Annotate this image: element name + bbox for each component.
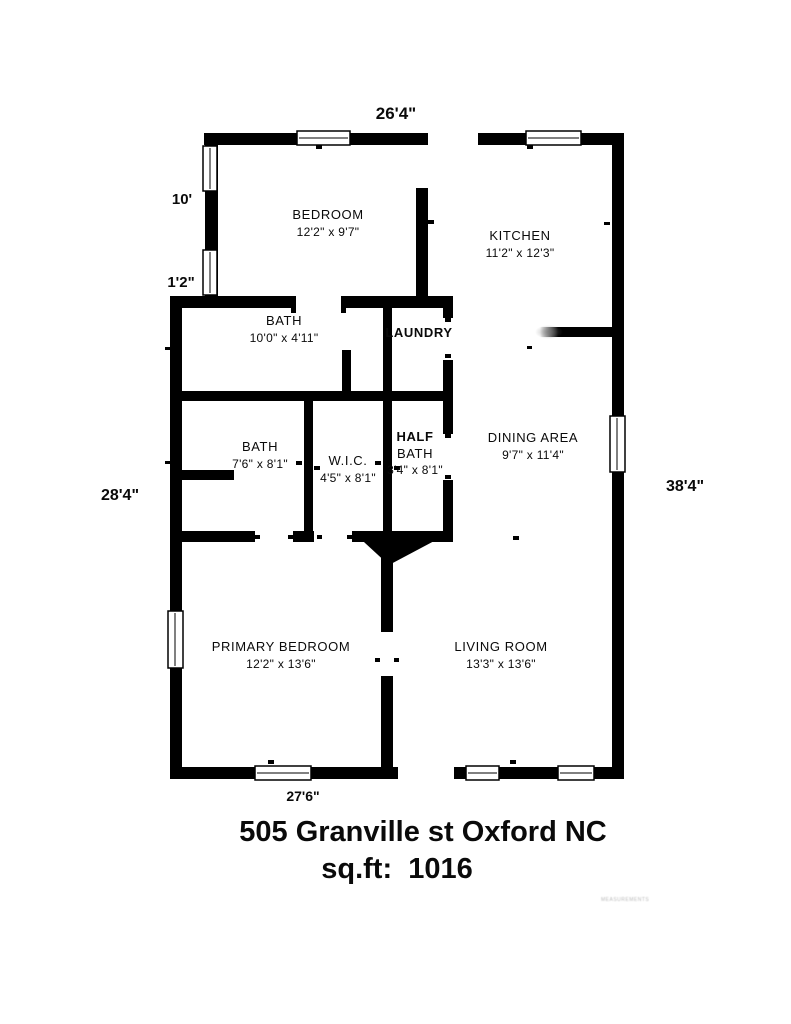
tick-mark	[317, 535, 322, 539]
room-dims: 11'2" x 12'3"	[486, 247, 555, 259]
tick-mark	[314, 466, 320, 470]
tick-mark	[347, 535, 352, 539]
tick-mark	[268, 760, 274, 764]
tick-mark	[445, 434, 451, 438]
wall-segment	[342, 350, 351, 395]
tick-mark	[510, 760, 516, 764]
room-name: LIVING ROOM	[454, 640, 547, 653]
wall-segment	[558, 327, 614, 337]
room-dims: 7'6" x 8'1"	[232, 458, 288, 470]
tick-mark	[316, 145, 322, 149]
window	[466, 766, 499, 780]
room-name: KITCHEN	[486, 229, 555, 242]
room-label-bath-main: BATH 10'0" x 4'11"	[250, 314, 319, 344]
smudge-mark	[535, 325, 563, 339]
tick-mark	[375, 461, 381, 465]
wall-segment	[304, 391, 313, 539]
tick-mark	[426, 220, 434, 224]
tick-mark	[341, 308, 346, 313]
tick-mark	[527, 346, 532, 349]
room-label-living-room: LIVING ROOM 13'3" x 13'6"	[454, 640, 547, 670]
tick-mark	[445, 475, 451, 479]
interior-walls	[170, 188, 614, 779]
room-label-dining: DINING AREA 9'7" x 11'4"	[488, 431, 578, 461]
dimension-bottom: 27'6"	[286, 788, 319, 804]
room-dims: 12'2" x 9'7"	[292, 226, 363, 238]
window	[526, 131, 581, 145]
room-label-half-bath: HALF BATH 3'4" x 8'1"	[387, 430, 443, 476]
room-name: BATH	[250, 314, 319, 327]
room-dims: 13'3" x 13'6"	[454, 658, 547, 670]
room-name: PRIMARY BEDROOM	[212, 640, 351, 653]
room-name-line2: BATH	[387, 447, 443, 460]
floorplan-canvas: 26'4" 10' 1'2" 28'4" 38'4" 27'6" BEDROOM…	[0, 0, 791, 1024]
tick-mark	[288, 535, 293, 539]
room-label-bedroom: BEDROOM 12'2" x 9'7"	[292, 208, 363, 238]
wall-segment	[443, 391, 453, 434]
room-name: DINING AREA	[488, 431, 578, 444]
room-label-primary-bedroom: PRIMARY BEDROOM 12'2" x 13'6"	[212, 640, 351, 670]
wall-segment	[170, 470, 234, 480]
room-dims: 4'5" x 8'1"	[320, 472, 376, 484]
tick-mark	[445, 318, 451, 322]
wall-segment	[170, 531, 255, 542]
room-dims: 12'2" x 13'6"	[212, 658, 351, 670]
room-name: BATH	[232, 440, 288, 453]
room-name: LAUNDRY	[385, 326, 452, 339]
room-dims: 9'7" x 11'4"	[488, 449, 578, 461]
wall-segment	[443, 303, 453, 318]
window	[255, 766, 311, 780]
window	[203, 250, 217, 295]
window	[610, 416, 625, 472]
tick-mark	[375, 658, 380, 662]
room-label-wic: W.I.C. 4'5" x 8'1"	[320, 454, 376, 484]
dimension-left-lower: 28'4"	[101, 487, 139, 505]
wall-segment	[443, 360, 453, 395]
tick-mark	[296, 461, 302, 465]
tick-mark	[394, 658, 399, 662]
entry-triangle	[352, 531, 453, 565]
watermark: MEASUREMENTS	[601, 897, 649, 903]
dimension-right: 38'4"	[666, 478, 704, 496]
window	[297, 131, 350, 145]
tick-mark	[527, 145, 533, 149]
dimension-left-offset: 1'2"	[167, 274, 194, 291]
room-name-line1: HALF	[387, 430, 443, 443]
dimension-left-upper: 10'	[172, 191, 192, 208]
room-dims: 3'4" x 8'1"	[387, 464, 443, 476]
wall-segment	[381, 676, 393, 779]
room-label-kitchen: KITCHEN 11'2" x 12'3"	[486, 229, 555, 259]
dimension-top: 26'4"	[376, 104, 416, 124]
room-name: W.I.C.	[320, 454, 376, 467]
window	[203, 146, 217, 191]
wall-segment	[443, 480, 453, 539]
wall-segment	[341, 296, 453, 308]
tick-mark	[165, 461, 171, 464]
room-dims: 10'0" x 4'11"	[250, 332, 319, 344]
tick-mark	[604, 222, 610, 225]
wall-segment	[416, 188, 428, 308]
window	[168, 611, 183, 668]
sqft-label: sq.ft: 1016	[321, 853, 473, 886]
tick-mark	[513, 536, 519, 540]
tick-mark	[165, 347, 171, 350]
room-label-bath-second: BATH 7'6" x 8'1"	[232, 440, 288, 470]
room-name: BEDROOM	[292, 208, 363, 221]
window	[558, 766, 594, 780]
wall-segment	[170, 296, 296, 308]
tick-mark	[255, 535, 260, 539]
tick-mark	[445, 354, 451, 358]
room-label-laundry: LAUNDRY	[385, 326, 452, 339]
address-title: 505 Granville st Oxford NC	[239, 816, 606, 849]
